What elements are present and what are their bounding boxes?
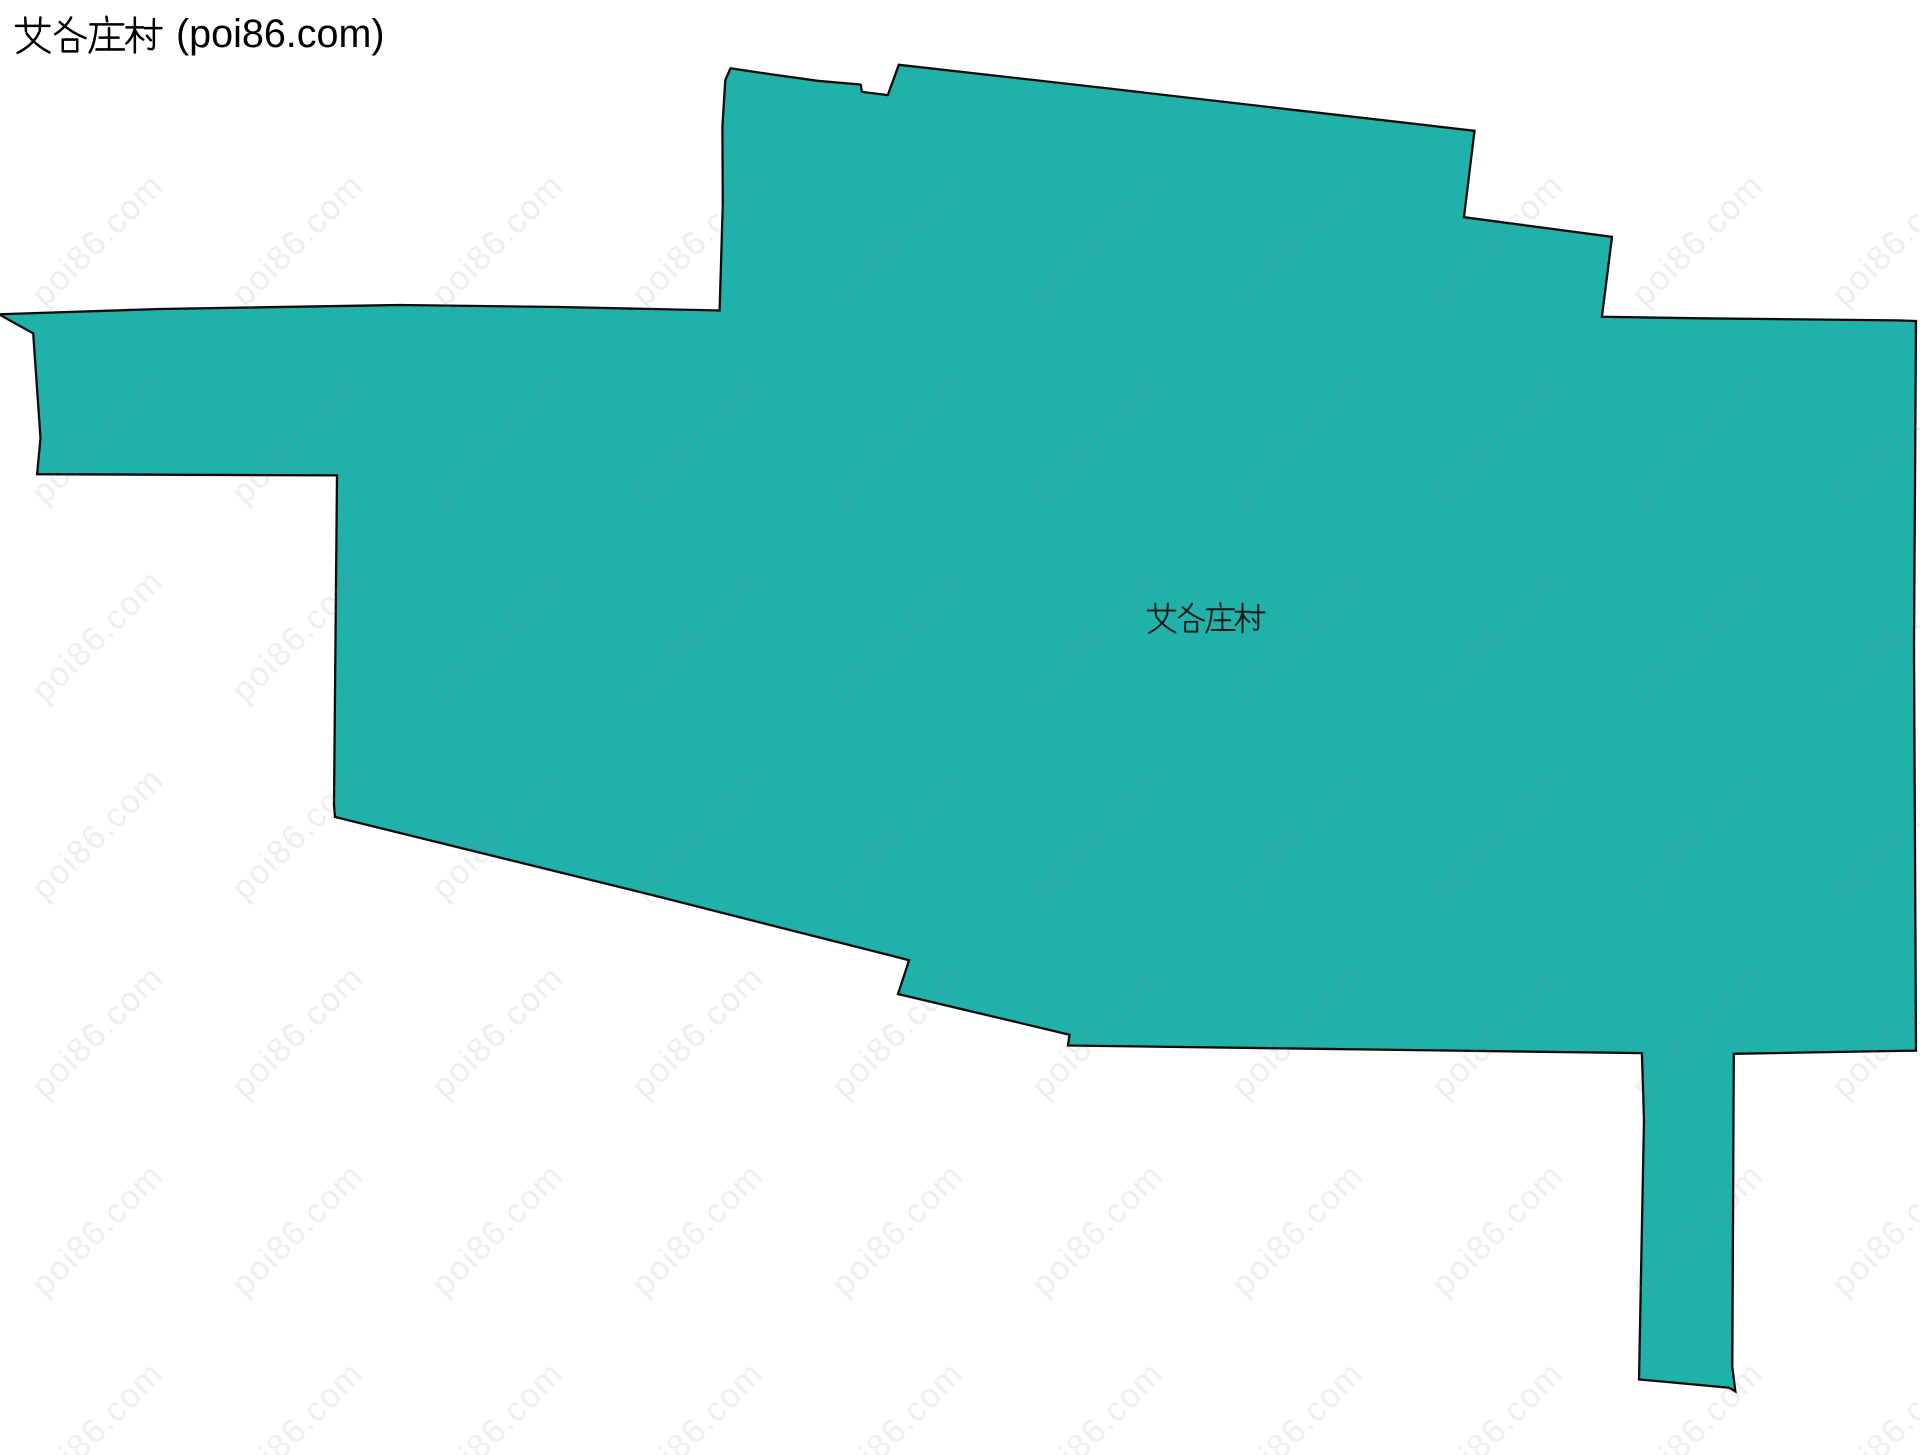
svg-text:(poi86.com): (poi86.com) xyxy=(176,12,385,56)
